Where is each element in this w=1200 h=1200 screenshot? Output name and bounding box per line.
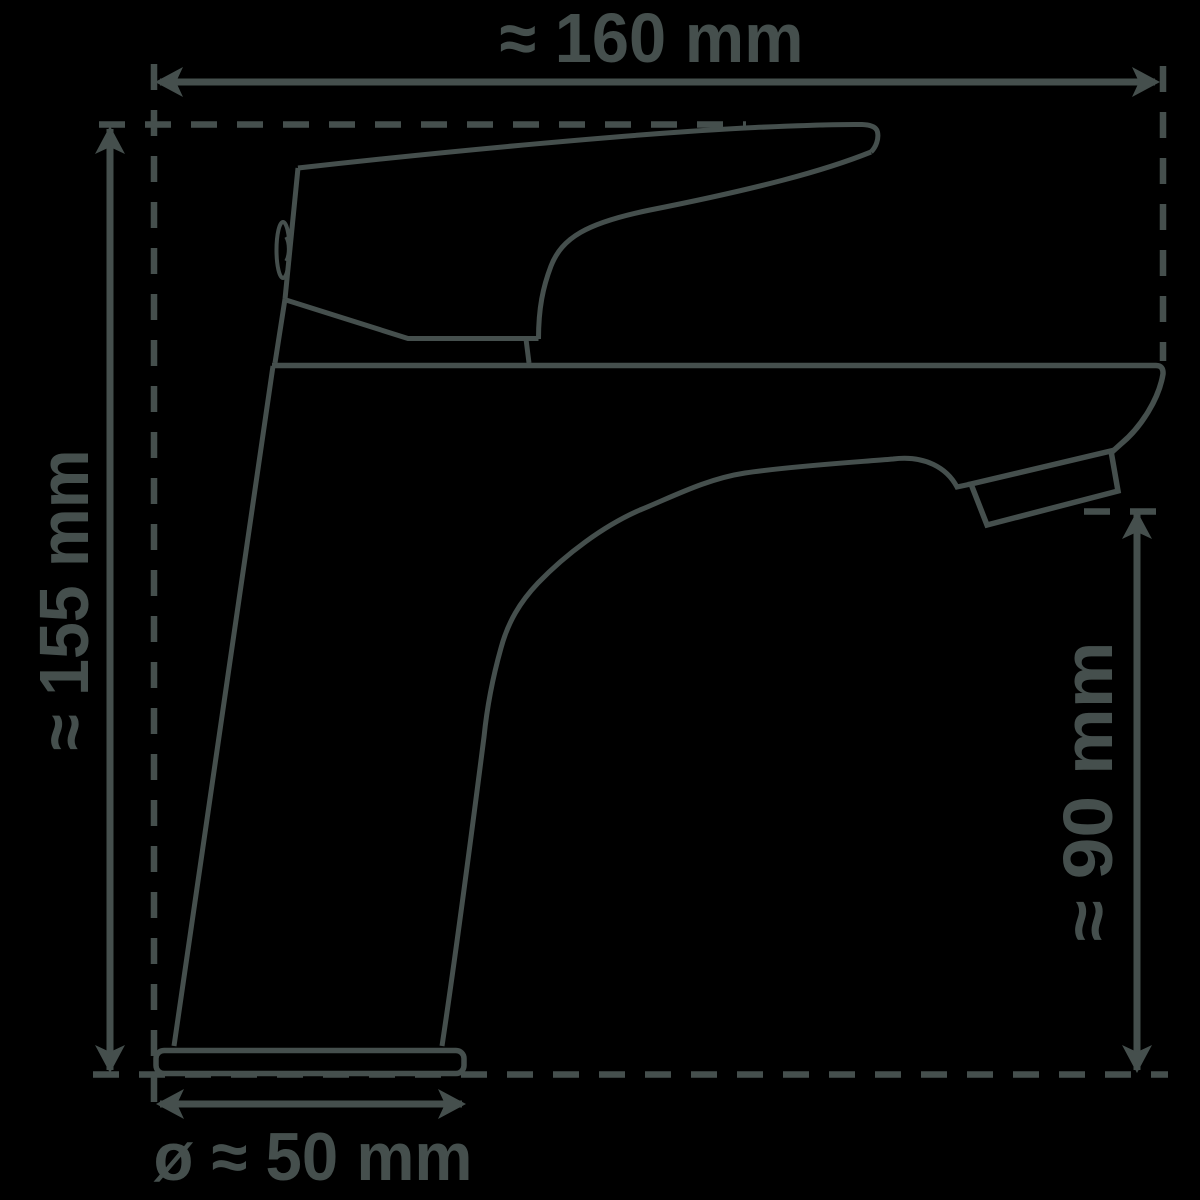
svg-text:≈ 155 mm: ≈ 155 mm [25, 450, 103, 751]
svg-text:ø ≈ 50 mm: ø ≈ 50 mm [154, 1119, 473, 1195]
svg-text:≈ 90 mm: ≈ 90 mm [1049, 642, 1127, 942]
svg-text:≈ 160 mm: ≈ 160 mm [500, 0, 804, 77]
